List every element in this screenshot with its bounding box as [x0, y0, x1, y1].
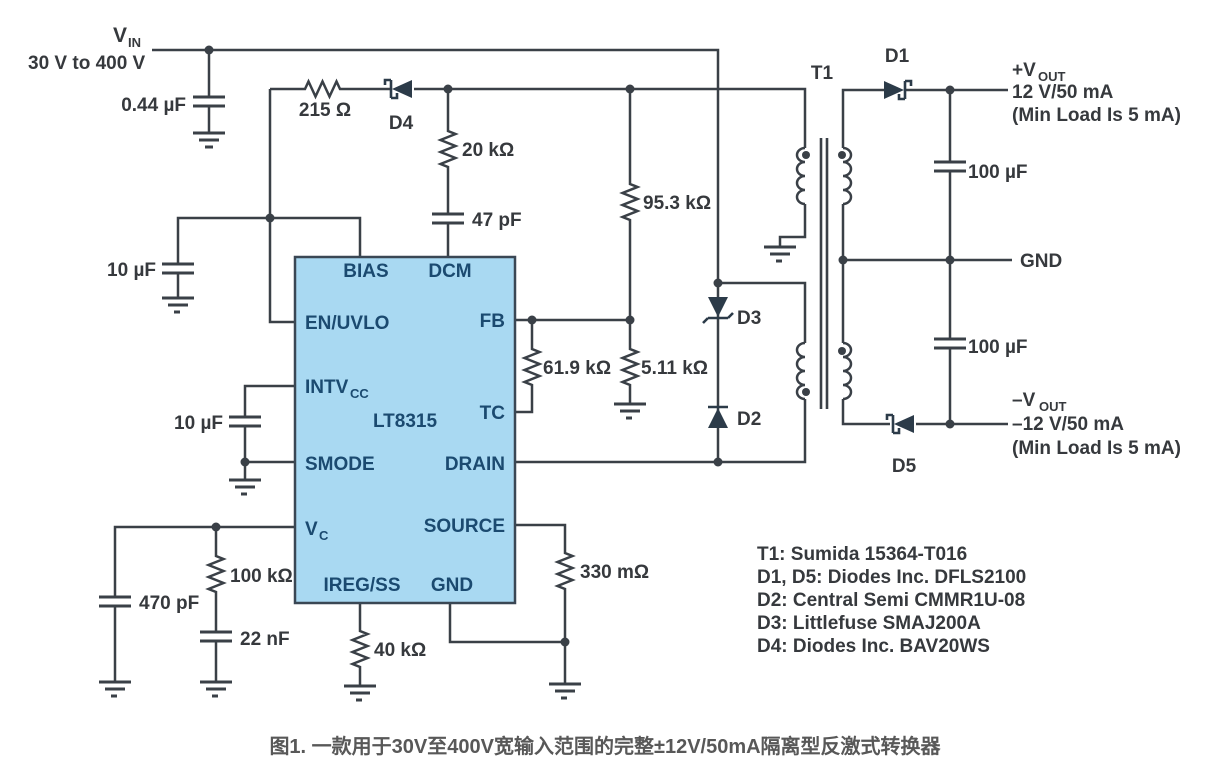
wire-intvcc-smode	[245, 386, 295, 480]
pin-label-en-uvlo: EN/UVLO	[305, 313, 389, 334]
pin-label-bias: BIAS	[343, 261, 388, 282]
capacitor-470p	[99, 597, 131, 606]
label-c-vc: 22 nF	[240, 629, 290, 650]
parts-list: T1: Sumida 15364-T016 D1, D5: Diodes Inc…	[757, 544, 1026, 657]
pin-label-intvcc-sub: CC	[350, 386, 369, 401]
wire-secondary	[843, 90, 1012, 424]
diode-d2	[708, 407, 728, 428]
capacitor-100u-neg	[934, 339, 966, 348]
vin-label-sub: IN	[128, 35, 141, 50]
vin-range-label: 30 V to 400 V	[28, 53, 146, 74]
label-r-fb-top: 95.3 kΩ	[643, 193, 711, 214]
label-d1: D1	[885, 46, 910, 67]
pin-label-ireg-ss: IREG/SS	[323, 575, 400, 596]
input-labels: V IN 30 V to 400 V	[28, 24, 146, 74]
pin-label-intvcc: INTV	[305, 377, 349, 398]
label-c-dcm: 47 pF	[472, 210, 522, 231]
vin-label: V	[113, 24, 127, 47]
pin-label-smode: SMODE	[305, 454, 375, 475]
resistor-20k	[441, 130, 456, 168]
pin-label-fb: FB	[480, 311, 505, 332]
resistor-95k3	[623, 183, 638, 221]
pin-label-gnd: GND	[431, 575, 473, 596]
label-c-bias: 10 µF	[107, 260, 156, 281]
parts-list-d2: D2: Central Semi CMMR1U-08	[757, 590, 1025, 611]
label-r-sense: 330 mΩ	[580, 562, 649, 583]
label-d2: D2	[737, 409, 761, 430]
label-c-vc-hf: 470 pF	[139, 593, 199, 614]
pin-label-vc-sub: C	[319, 528, 329, 543]
capacitor-100u-pos	[934, 162, 966, 171]
vout-pos-rating: 12 V/50 mA	[1012, 82, 1114, 103]
label-c-intvcc: 10 µF	[174, 413, 223, 434]
diode-d5	[887, 415, 914, 433]
phase-dot-primary	[802, 388, 810, 396]
resistor-100k	[209, 555, 224, 593]
parts-list-t1: T1: Sumida 15364-T016	[757, 544, 967, 565]
label-r-bias: 215 Ω	[299, 100, 351, 121]
pin-label-tc: TC	[480, 403, 506, 424]
label-r-tc: 61.9 kΩ	[543, 358, 611, 379]
resistor-215ohm	[303, 82, 342, 97]
parts-list-d1d5: D1, D5: Diodes Inc. DFLS2100	[757, 567, 1026, 588]
ic-lt8315: BIAS DCM EN/UVLO INTV CC SMODE V C LT831…	[295, 257, 515, 603]
diode-d3-tvs	[703, 297, 733, 323]
vout-neg-rating: –12 V/50 mA	[1012, 414, 1124, 435]
label-d3: D3	[737, 308, 761, 329]
capacitor-47p	[432, 214, 464, 223]
resistor-61k9	[525, 348, 540, 386]
capacitor-10u-intvcc	[229, 417, 261, 426]
parts-list-d4: D4: Diodes Inc. BAV20WS	[757, 636, 990, 657]
vout-pos-note: (Min Load Is 5 mA)	[1012, 105, 1181, 126]
label-t1: T1	[811, 63, 834, 84]
capacitor-0u44	[193, 97, 225, 106]
capacitor-22n	[200, 632, 232, 641]
vout-pos-label: +V	[1012, 60, 1036, 81]
pin-label-vc: V	[305, 519, 318, 540]
label-d5: D5	[892, 456, 917, 477]
phase-dot-bias	[802, 151, 810, 159]
label-r-vc: 100 kΩ	[230, 566, 293, 587]
circuit-schematic: BIAS DCM EN/UVLO INTV CC SMODE V C LT831…	[0, 0, 1210, 784]
parts-list-d3: D3: Littlefuse SMAJ200A	[757, 613, 981, 634]
wire-bias-winding-return	[780, 204, 805, 247]
vout-neg-note: (Min Load Is 5 mA)	[1012, 438, 1181, 459]
resistor-330m	[558, 552, 573, 590]
label-c-out-neg: 100 µF	[968, 337, 1028, 358]
output-labels: +V OUT 12 V/50 mA (Min Load Is 5 mA) GND…	[1012, 60, 1181, 459]
label-r-fb-bot: 5.11 kΩ	[641, 358, 708, 379]
phase-dot-sec-bot	[838, 347, 846, 355]
vout-neg-label: –V	[1012, 390, 1036, 411]
figure-caption: 图1. 一款用于30V至400V宽输入范围的完整±12V/50mA隔离型反激式转…	[269, 734, 941, 758]
label-c-in: 0.44 µF	[121, 95, 186, 116]
label-r-dcm: 20 kΩ	[462, 140, 514, 161]
ic-part-number: LT8315	[373, 411, 438, 432]
schematic-figure: BIAS DCM EN/UVLO INTV CC SMODE V C LT831…	[0, 0, 1210, 784]
output-gnd-label: GND	[1020, 251, 1062, 272]
label-c-out-pos: 100 µF	[968, 162, 1028, 183]
resistor-5k11	[623, 348, 638, 386]
pin-label-source: SOURCE	[424, 516, 505, 537]
pin-label-drain: DRAIN	[445, 454, 505, 475]
capacitor-10u-bias	[162, 264, 194, 273]
vout-neg-label-sub: OUT	[1039, 399, 1067, 414]
label-d4: D4	[389, 113, 414, 134]
label-r-ireg: 40 kΩ	[374, 640, 426, 661]
pin-label-dcm: DCM	[428, 261, 471, 282]
phase-dot-sec-top	[838, 151, 846, 159]
resistor-40k	[353, 630, 368, 668]
